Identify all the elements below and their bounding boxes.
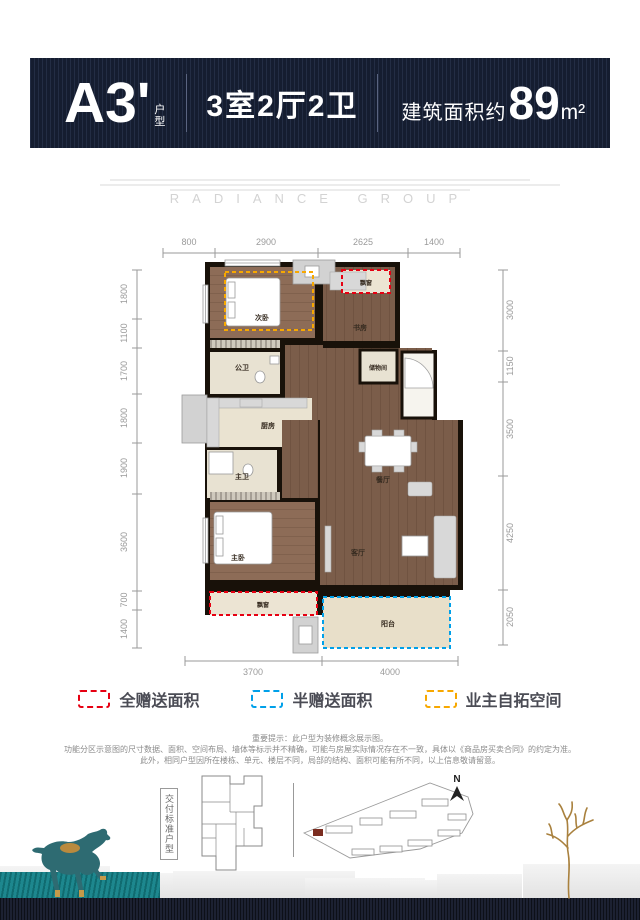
header-divider	[186, 74, 187, 132]
fine-print-line	[110, 179, 530, 181]
header-divider	[377, 74, 378, 132]
disclaimer-line-2: 功能分区示意图的尺寸数据、面积、空间布局、墙体等标示并不精确，可能与房屋实际情况…	[20, 744, 620, 755]
dim-right-3: 4250	[505, 523, 515, 543]
area-prefix: 建筑面积约	[401, 96, 506, 125]
dim-left-7: 1400	[119, 619, 129, 639]
room-label-dining-room: 餐厅	[375, 475, 390, 484]
room-label-balcony: 阳台	[381, 619, 395, 628]
room-label-second-bedroom: 次卧	[255, 313, 269, 322]
dim-line-left	[132, 270, 142, 648]
owner-expand-swatch	[425, 690, 457, 708]
wardrobe-strip-2	[210, 492, 280, 500]
appliance-bottom	[299, 626, 312, 644]
disclaimer-line-3: 此外，相同户型因所在楼栋、单元、楼层不同，局部的结构、面积可能有所不同，以上信息…	[20, 755, 620, 766]
dim-line-bottom	[185, 656, 458, 666]
legend-item-full-gift: 全赠送面积	[78, 687, 199, 711]
room-label-living-room: 客厅	[350, 548, 365, 557]
area-unit: m²	[561, 101, 586, 125]
horse-statue	[30, 824, 115, 899]
dim-line-top	[163, 248, 460, 258]
dim-top-3: 1400	[424, 237, 444, 247]
dim-left-2: 1700	[119, 361, 129, 381]
dim-top-1: 2900	[256, 237, 276, 247]
half-gift-label: 半赠送面积	[292, 687, 372, 711]
room-guest-bathroom	[210, 352, 280, 394]
ac-platform-left	[182, 395, 207, 443]
disclaimer: 重要提示：此户型为装修概念展示图。 功能分区示意图的尺寸数据、面积、空间布局、墙…	[20, 733, 620, 766]
site-plan: N	[300, 770, 485, 882]
delivery-standard-outline-plan	[192, 772, 272, 874]
owner-expand-label: 业主自拓空间	[466, 687, 562, 711]
room-label-master-bedroom: 主卧	[231, 553, 245, 562]
room-label-bay-window-top: 飘窗	[359, 279, 372, 287]
dim-top-2: 2625	[353, 237, 373, 247]
floor-plan: 800 2900 2625 1400 3700 4000 1800 1100 1…	[110, 230, 520, 680]
room-label-storage: 储物间	[368, 364, 387, 372]
dim-left-5: 3600	[119, 532, 129, 552]
rooms-summary: 3室2厅2卫	[206, 81, 358, 125]
branch-decoration	[535, 788, 605, 900]
legend-item-half-gift: 半赠送面积	[251, 687, 372, 711]
site-highlighted-building	[313, 829, 323, 836]
area-value: 89	[508, 80, 559, 126]
room-label-bay-window-bottom: 飘窗	[256, 601, 269, 609]
legend-item-owner-expand: 业主自拓空间	[425, 687, 562, 711]
dim-left-6: 700	[119, 592, 129, 607]
room-label-master-bathroom: 主卫	[235, 472, 249, 481]
unit-code: A3'	[64, 75, 150, 132]
dark-footer-band	[0, 898, 640, 920]
dim-line-right	[498, 270, 508, 645]
dim-top-0: 800	[181, 237, 196, 247]
dim-left-1: 1100	[119, 323, 129, 342]
room-label-kitchen: 厨房	[261, 421, 275, 430]
dim-left-3: 1800	[119, 408, 129, 428]
hall-floor-2	[282, 420, 318, 498]
unit-type-label: 户型	[154, 104, 167, 128]
room-label-study: 书房	[353, 323, 367, 332]
dim-right-1: 1150	[505, 356, 515, 375]
dim-right-2: 3500	[505, 419, 515, 439]
dim-bottom-0: 3700	[243, 667, 263, 677]
area-info: 建筑面积约 89 m²	[401, 80, 585, 126]
room-label-guest-bathroom: 公卫	[235, 364, 249, 372]
wardrobe-strip	[210, 340, 280, 348]
delivery-standard-label: 交付标准户型	[160, 788, 178, 860]
half-gift-swatch	[251, 690, 283, 708]
full-gift-label: 全赠送面积	[119, 687, 199, 711]
header-band: A3' 户型 3室2厅2卫 建筑面积约 89 m²	[30, 58, 610, 148]
divider-line	[293, 783, 294, 857]
dim-right-4: 2050	[505, 607, 515, 627]
disclaimer-line-1: 重要提示：此户型为装修概念展示图。	[20, 733, 620, 744]
radiance-group-watermark: RADIANCE GROUP	[0, 191, 640, 206]
dim-right-0: 3000	[505, 300, 515, 320]
full-gift-swatch	[78, 690, 110, 708]
dim-bottom-1: 4000	[380, 667, 400, 677]
dim-left-4: 1900	[119, 458, 129, 478]
horse-saddle	[60, 843, 80, 853]
compass-n-label: N	[453, 774, 460, 785]
legend: 全赠送面积 半赠送面积 业主自拓空间	[0, 687, 640, 711]
fine-print-line	[100, 184, 560, 186]
dim-left-0: 1800	[119, 284, 129, 304]
